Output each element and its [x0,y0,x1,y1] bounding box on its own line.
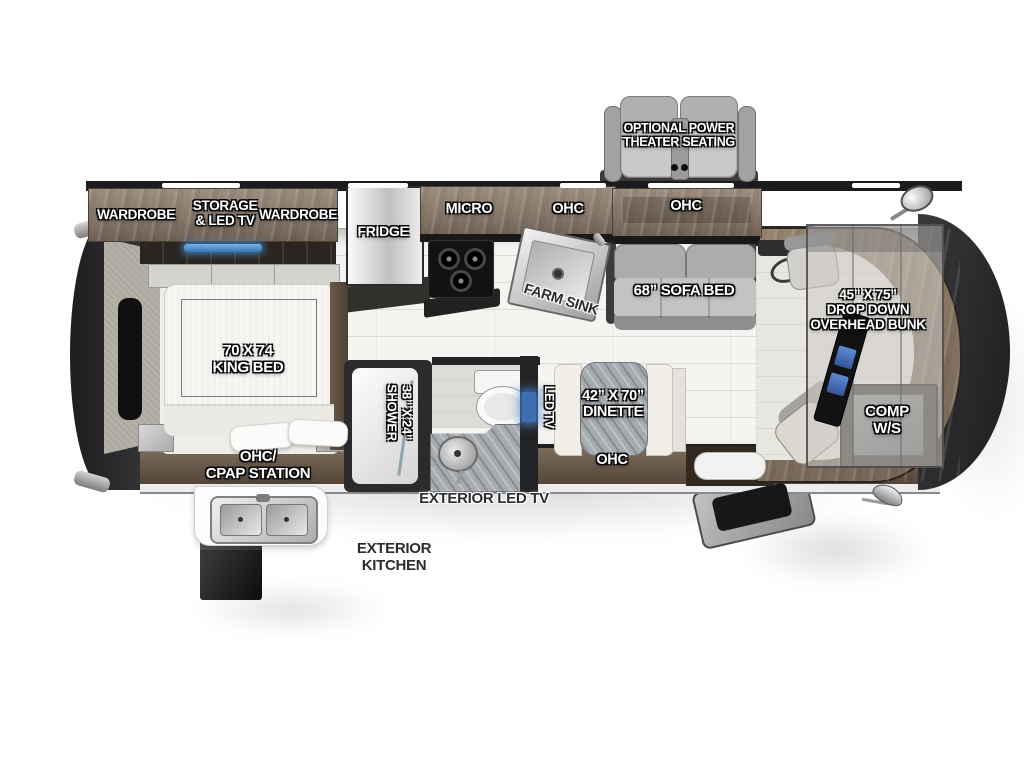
sofa-skirt [614,316,756,330]
burner-1 [438,248,460,270]
sofa-ohc-label: OHC [612,198,760,214]
sofa-bed-label: 68” SOFA BED [612,283,756,300]
burner-2 [464,248,486,270]
top-window-2 [348,183,408,188]
exterior-kitchen-label: EXTERIOR KITCHEN [320,541,468,575]
sofa-back-right [686,244,756,280]
theater-seating-label: OPTIONAL POWER THEATER SEATING [600,121,758,149]
bunk-ladder-step-1 [834,345,857,369]
top-window-1 [162,183,240,188]
led-tv-panel [522,392,536,422]
dinette-bench-panel [672,368,686,452]
ohc-cpap-label: OHC/ CPAP STATION [146,449,370,483]
rear-window [118,298,142,420]
kitchen-ohc-label: OHC [530,201,606,217]
king-bed-label: 70 X 74 KING BED [172,343,324,377]
vanity-sink [438,436,478,472]
fridge-label: FRIDGE [346,224,420,240]
exterior-kitchen-box [200,540,262,600]
comp-ws-label: COMP W/S [840,404,934,438]
top-window-4 [648,183,734,188]
wardrobe-right-label: WARDROBE [256,207,340,222]
storage-led-tv-label: STORAGE & LED TV [184,198,266,228]
top-window-3 [560,183,606,188]
dinette-label: 42” X 70” DINETTE [554,388,672,420]
wardrobe-left-label: WARDROBE [90,207,182,222]
bed-pillow-2 [287,418,348,447]
exterior-led-tv-label: EXTERIOR LED TV [388,491,580,508]
theater-cupholder-2 [681,164,688,171]
led-tv-label: LED TV [542,367,556,447]
led-light-strip [184,244,262,252]
sofa-back-left [614,244,686,280]
tv-wall [520,356,538,492]
exterior-sink-drain-right [284,517,289,522]
theater-cupholder-1 [671,164,678,171]
micro-label: MICRO [424,201,514,217]
sofa-ohc-edge [612,236,760,244]
rv-floorplan-canvas: OPTIONAL POWER THEATER SEATING WARDROBE … [0,0,1024,768]
exterior-sink [210,496,318,544]
bunk-ladder-step-2 [826,372,849,396]
burner-3 [450,270,472,292]
vanity-sink-drain [454,450,461,457]
bunk-top-band [808,226,942,252]
top-window-5 [852,183,900,188]
overhead-bunk-label: 45” X 75” DROP DOWN OVERHEAD BUNK [792,287,944,332]
dinette-ohc-label: OHC [576,452,648,468]
exterior-sink-faucet [256,494,270,502]
toilet-seat [484,393,522,421]
exterior-sink-drain-left [238,517,243,522]
shower-label: 38” X 24” SHOWER [384,358,413,468]
entry-threshold [694,452,766,480]
